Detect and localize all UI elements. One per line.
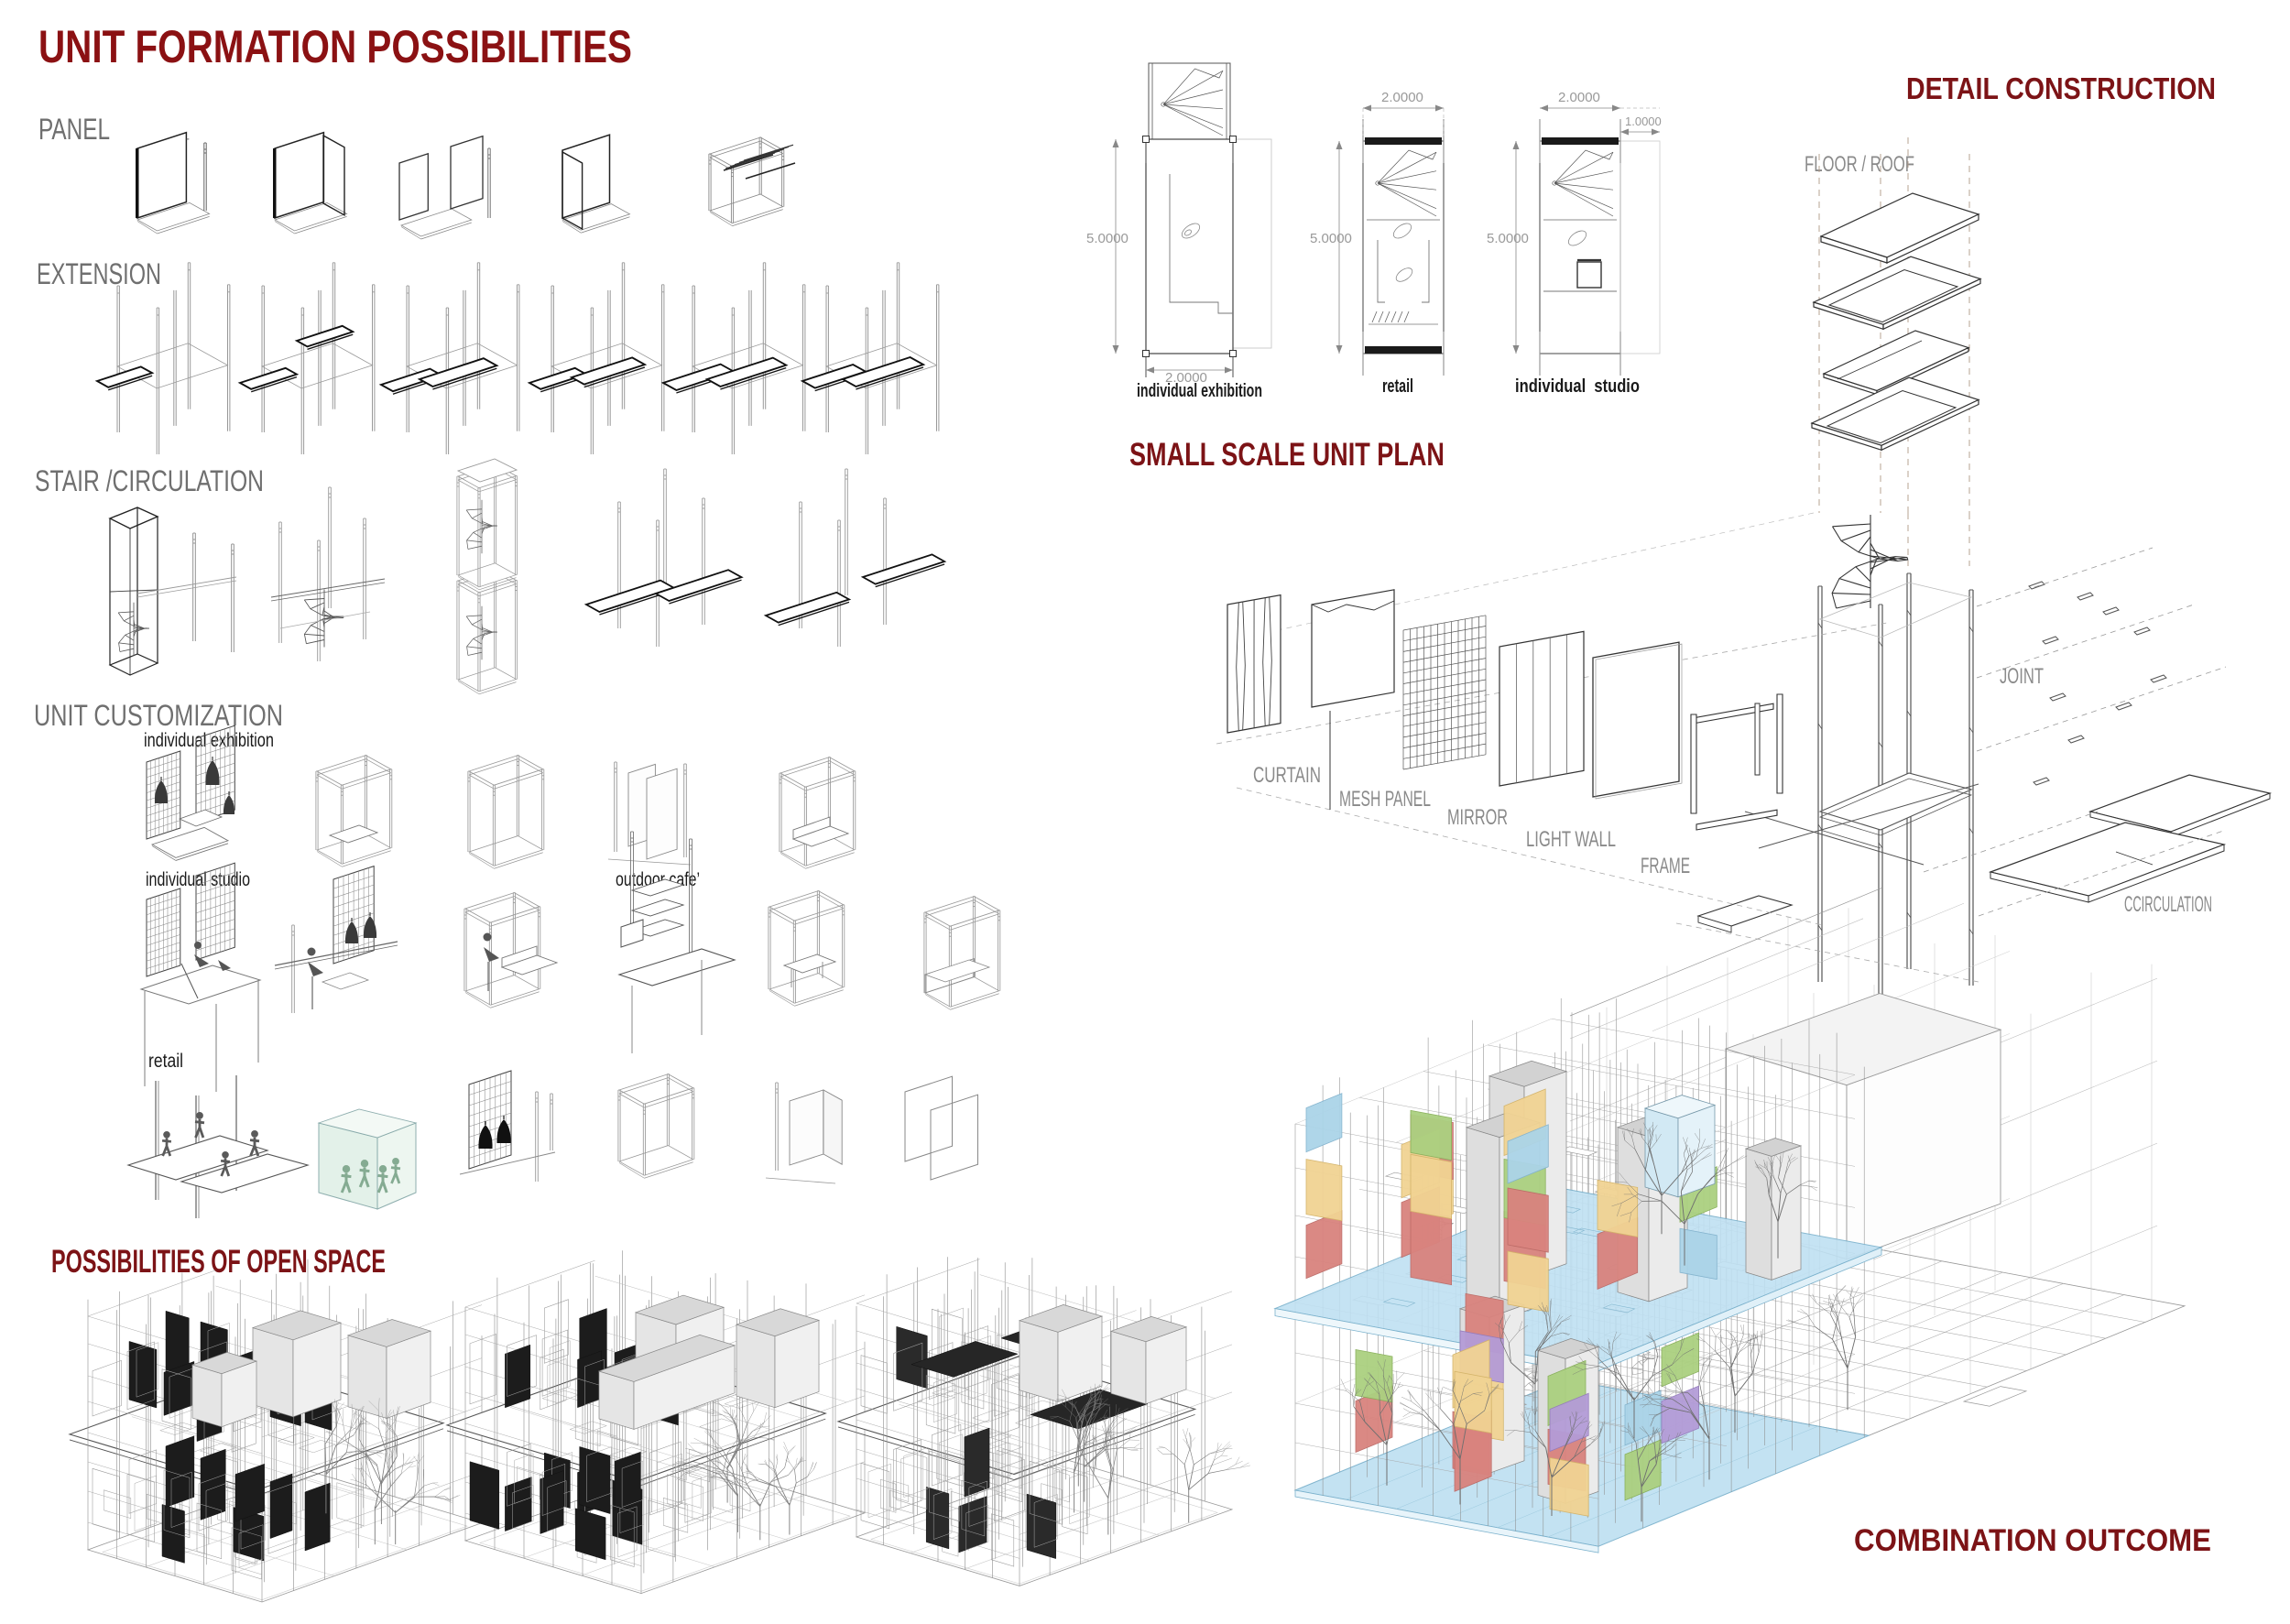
svg-text:individual studio: individual studio: [1515, 376, 1640, 397]
svg-text:LIGHT WALL: LIGHT WALL: [1526, 827, 1616, 852]
svg-text:MESH PANEL: MESH PANEL: [1339, 787, 1431, 812]
svg-text:individual exhibition: individual exhibition: [144, 730, 274, 751]
svg-text:individual exhibition: individual exhibition: [1137, 381, 1262, 401]
svg-text:COMBINATION OUTCOME: COMBINATION OUTCOME: [1854, 1523, 2211, 1558]
svg-text:retail: retail: [1382, 376, 1413, 397]
svg-text:UNIT FORMATION POSSIBILITIES: UNIT FORMATION POSSIBILITIES: [38, 21, 632, 72]
svg-text:EXTENSION: EXTENSION: [37, 257, 161, 290]
svg-text:MIRROR: MIRROR: [1447, 805, 1508, 830]
svg-text:FRAME: FRAME: [1641, 854, 1690, 878]
svg-text:STAIR /CIRCULATION: STAIR /CIRCULATION: [35, 464, 264, 497]
svg-text:5.0000: 5.0000: [1086, 231, 1129, 246]
svg-text:FLOOR / ROOF: FLOOR / ROOF: [1805, 152, 1914, 177]
svg-text:DETAIL CONSTRUCTION: DETAIL CONSTRUCTION: [1906, 71, 2216, 105]
svg-text:SMALL SCALE UNIT PLAN: SMALL SCALE UNIT PLAN: [1129, 437, 1445, 473]
svg-text:5.0000: 5.0000: [1310, 231, 1352, 246]
svg-text:CURTAIN: CURTAIN: [1253, 763, 1321, 788]
svg-text:POSSIBILITIES OF OPEN SPACE: POSSIBILITIES OF OPEN SPACE: [51, 1244, 386, 1280]
svg-text:UNIT CUSTOMIZATION: UNIT CUSTOMIZATION: [34, 699, 283, 732]
svg-text:CCIRCULATION: CCIRCULATION: [2124, 892, 2212, 917]
svg-text:5.0000: 5.0000: [1487, 231, 1529, 246]
svg-text:2.0000: 2.0000: [1381, 90, 1423, 105]
svg-text:retail: retail: [148, 1051, 183, 1072]
svg-text:PANEL: PANEL: [38, 113, 110, 146]
svg-text:1.0000: 1.0000: [1625, 114, 1662, 128]
svg-text:2.0000: 2.0000: [1558, 90, 1600, 105]
